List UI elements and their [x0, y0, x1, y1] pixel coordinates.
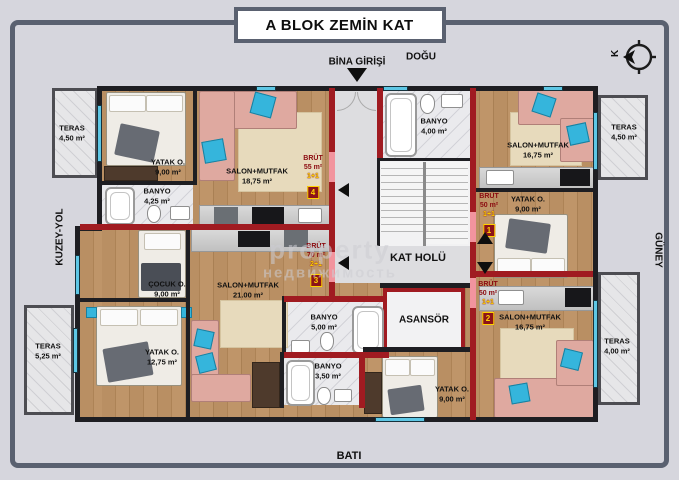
- bed-unit4: [106, 92, 186, 166]
- compass-north-letter: K: [610, 49, 621, 57]
- window-bedroom2: [375, 417, 425, 422]
- sink-unit1: [486, 170, 514, 185]
- sink-unit4: [298, 208, 322, 223]
- wall-salon1-bedroom1: [476, 188, 593, 192]
- nightstand-unit3-a: [86, 307, 97, 318]
- wall-bath4-top: [102, 181, 193, 185]
- label-bedroom-unit2: YATAK O.9,00 m²: [435, 384, 469, 404]
- label-terrace-unit3: TERAS5,25 m²: [35, 341, 61, 361]
- sofa-unit3-b: [191, 374, 251, 402]
- wardrobe-unit2: [364, 372, 382, 414]
- stair-rail: [423, 162, 426, 246]
- watermark-line2: недвижимость: [263, 265, 397, 282]
- stove-unit2: [565, 288, 591, 307]
- label-bath-unit3: BANYO5,00 m²: [310, 312, 337, 332]
- label-salon-unit1: SALON+MUTFAK16,75 m²: [507, 140, 569, 160]
- direction-west: BATI: [337, 450, 362, 462]
- watermark-line1: property: [269, 235, 390, 266]
- label-salon-unit4: SALON+MUTFAK18,75 m²: [226, 166, 288, 186]
- basin-unit4: [170, 206, 190, 220]
- wall-stairs-left: [377, 161, 380, 246]
- label-bedroom-unit1: YATAK O.9,00 m²: [511, 194, 545, 214]
- basin-core: [441, 94, 463, 108]
- wall-top: [97, 86, 598, 91]
- window-salon2: [593, 300, 598, 388]
- red-wall-unit4-unit3: [80, 224, 329, 230]
- bed-unit1: [494, 214, 568, 278]
- label-bedroom-unit3: YATAK O.12,75 m²: [145, 347, 179, 367]
- door-unit1: [470, 212, 476, 242]
- red-wall-vestibule-bath: [377, 88, 383, 158]
- rug-unit3: [220, 300, 288, 348]
- arrow-unit1-icon: [477, 232, 493, 244]
- wall-bedroom4-salon4: [193, 88, 197, 185]
- red-wall-bath2-right: [359, 352, 365, 408]
- tub-core: [385, 93, 417, 157]
- toilet-unit3: [320, 332, 334, 351]
- stair-flight-left: [381, 162, 423, 232]
- entrance-arrow-icon: [347, 68, 367, 82]
- label-kids-room-unit3: ÇOCUK O.9,00 m²: [148, 279, 186, 299]
- arrow-unit4-icon: [338, 183, 349, 197]
- window-salon4: [256, 86, 276, 91]
- pillow-unit4-b: [201, 138, 226, 163]
- label-terrace-unit1: TERAS4,50 m²: [611, 122, 637, 142]
- wall-bottom: [75, 417, 598, 422]
- bed-unit2: [382, 356, 438, 418]
- label-salon-unit2: SALON+MUTFAK16,75 m²: [499, 312, 561, 332]
- toilet-unit2: [317, 387, 331, 405]
- window-salon1-top: [543, 86, 563, 91]
- toilet-core: [420, 94, 435, 114]
- compass-icon: K: [602, 34, 660, 80]
- door-unit4: [329, 152, 335, 182]
- window-bedroom3: [73, 328, 78, 373]
- label-terrace-unit4: TERAS4,50 m²: [59, 123, 85, 143]
- wardrobe-unit3: [252, 362, 280, 408]
- red-wall-bath3-bottom: [284, 352, 389, 358]
- direction-south: GÜNEY: [653, 232, 664, 268]
- wall-bath3-left: [282, 296, 286, 358]
- stove-unit1: [560, 169, 590, 186]
- tub-unit4: [105, 187, 135, 225]
- label-elevator: ASANSÖR: [399, 314, 449, 327]
- label-terrace-unit2: TERAS4,00 m²: [604, 336, 630, 356]
- dresser-unit4: [104, 166, 158, 181]
- floor-plan-canvas: A BLOK ZEMİN KAT K DOĞU BATI KUZEY-YOL G…: [0, 0, 679, 480]
- brut-unit4: BRÜT 55 m² 1+1 4: [303, 155, 322, 201]
- sink-unit2: [498, 290, 524, 305]
- stair-flight-right: [426, 162, 468, 244]
- pillow-unit1-b: [566, 122, 590, 146]
- oven-unit4: [214, 207, 238, 224]
- window-kids-room: [75, 255, 80, 295]
- basin-unit2: [334, 389, 352, 402]
- label-bedroom-unit4: YATAK O.9,00 m²: [151, 157, 185, 177]
- pillow-unit3-a: [193, 328, 214, 349]
- window-core-bath: [383, 86, 408, 91]
- wall-bath2-left: [280, 352, 284, 408]
- label-bath-unit4: BANYO4,25 m²: [143, 186, 170, 206]
- wall-bedrooms-salon3: [186, 228, 190, 418]
- plan-title: A BLOK ZEMİN KAT: [234, 7, 446, 43]
- label-salon-unit3: SALON+MUTFAK21.00 m²: [217, 280, 279, 300]
- plan-title-text: A BLOK ZEMİN KAT: [265, 17, 413, 34]
- direction-north-road: KUZEY-YOL: [55, 208, 66, 265]
- red-wall-unit1-unit2: [476, 271, 593, 277]
- window-terrace-unit4: [97, 105, 102, 162]
- red-wall-bath3-top: [284, 296, 383, 302]
- label-hall: KAT HOLÜ: [390, 251, 446, 265]
- arrow-unit2-icon: [477, 262, 493, 274]
- toilet-unit4: [147, 205, 161, 223]
- wall-stairs-top: [377, 158, 470, 161]
- pillow-unit2-b: [508, 382, 530, 404]
- building-entrance-label: BİNA GİRİŞİ: [329, 57, 386, 68]
- stove-unit3: [238, 231, 270, 247]
- tub-unit2: [286, 360, 315, 406]
- label-bath-unit2: BANYO3,50 m²: [314, 361, 341, 381]
- brut-unit2: BRÜT 50 m² 1+1 2: [478, 281, 497, 327]
- stove-unit4: [252, 207, 284, 224]
- direction-east: DOĞU: [406, 52, 436, 63]
- wall-elevator-top: [380, 283, 470, 288]
- label-bath-core: BANYO4,00 m²: [420, 116, 447, 136]
- bed-unit3: [96, 306, 182, 386]
- window-salon1: [593, 112, 598, 170]
- red-wall-core-right: [470, 88, 476, 420]
- door-unit2: [470, 278, 476, 308]
